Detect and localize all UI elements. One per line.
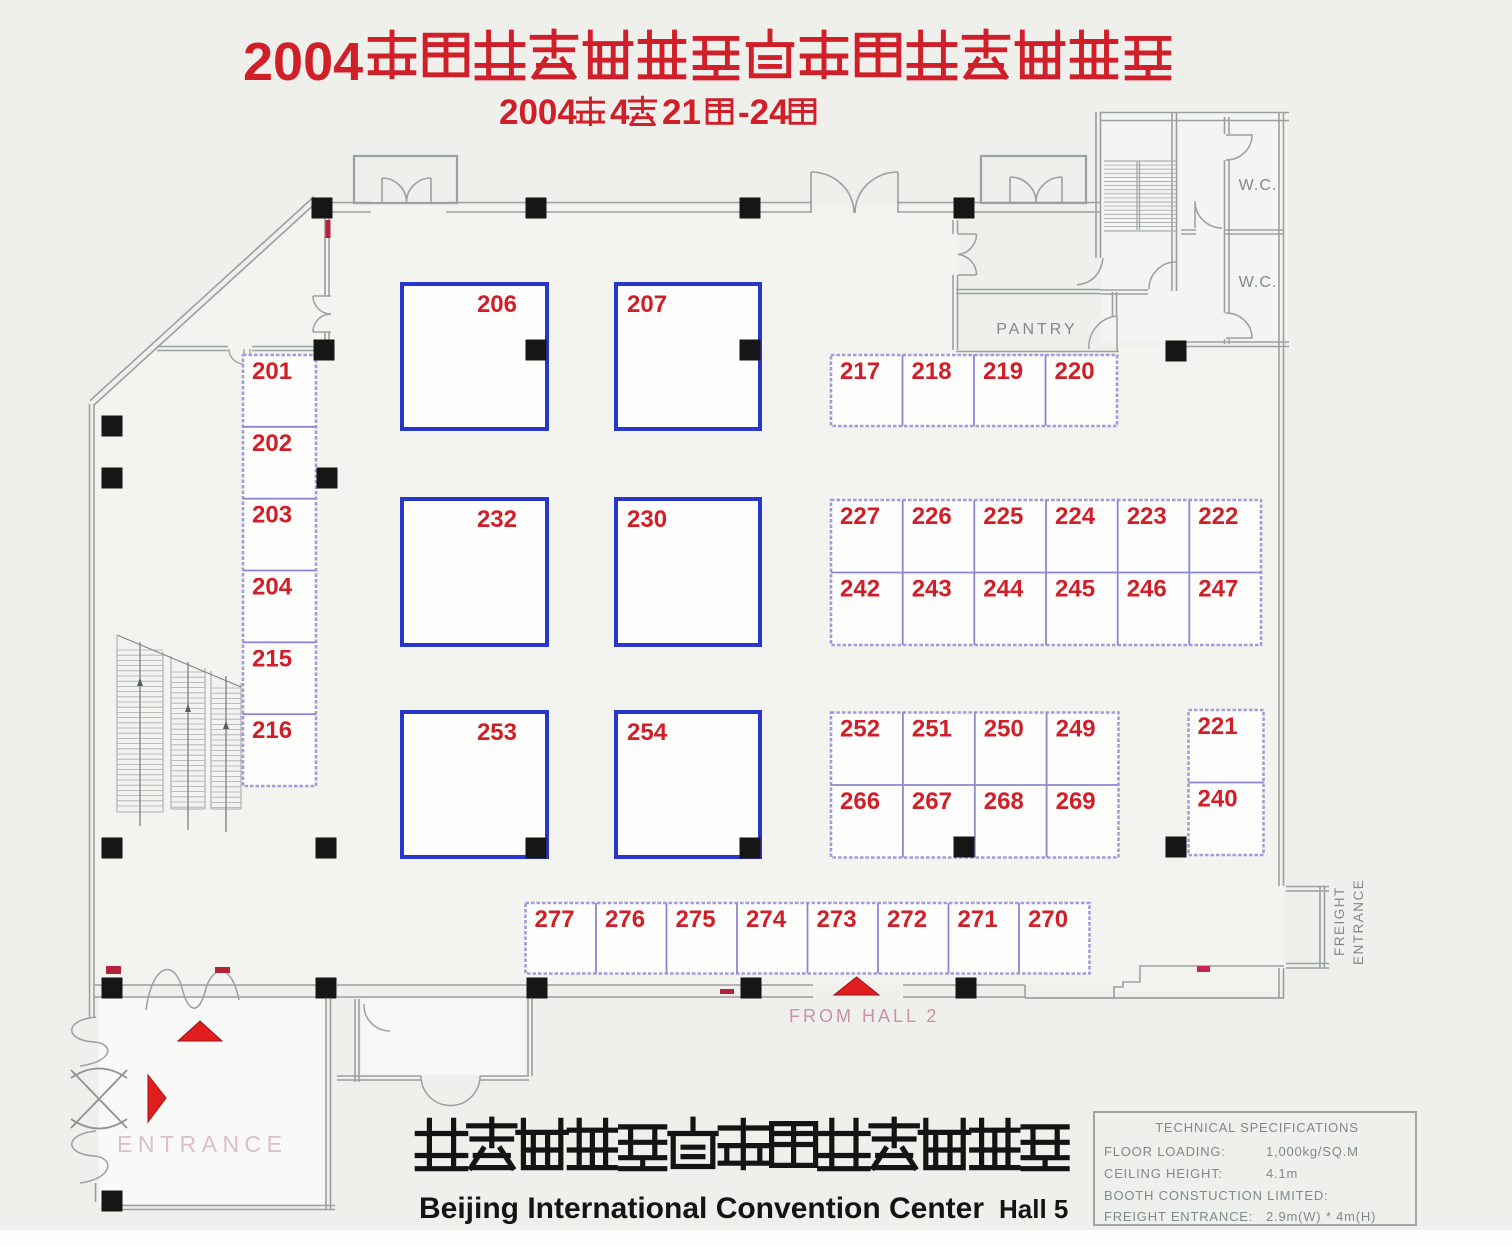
- svg-text:251: 251: [912, 716, 952, 743]
- svg-text:ENTRANCE: ENTRANCE: [1351, 879, 1366, 965]
- svg-text:Beijing International Conventi: Beijing International Convention Center: [419, 1192, 984, 1225]
- svg-text:CEILING HEIGHT:: CEILING HEIGHT:: [1104, 1166, 1223, 1181]
- svg-text:240: 240: [1198, 786, 1238, 813]
- svg-text:216: 216: [252, 717, 292, 744]
- svg-text:224: 224: [1055, 503, 1096, 530]
- svg-text:21: 21: [662, 93, 701, 132]
- svg-text:242: 242: [840, 576, 880, 603]
- svg-text:226: 226: [912, 503, 952, 530]
- svg-text:253: 253: [477, 719, 517, 746]
- svg-text:207: 207: [627, 291, 667, 318]
- svg-text:215: 215: [252, 645, 292, 672]
- svg-text:203: 203: [252, 502, 292, 529]
- svg-text:269: 269: [1056, 788, 1096, 815]
- svg-text:204: 204: [252, 574, 293, 601]
- svg-text:245: 245: [1055, 576, 1095, 603]
- svg-text:FREIGHT: FREIGHT: [1332, 886, 1347, 956]
- svg-text:273: 273: [817, 906, 857, 933]
- svg-text:232: 232: [477, 506, 517, 533]
- svg-text:272: 272: [887, 906, 927, 933]
- svg-text:250: 250: [984, 716, 1024, 743]
- svg-text:267: 267: [912, 788, 952, 815]
- svg-text:227: 227: [840, 503, 880, 530]
- svg-text:270: 270: [1028, 906, 1068, 933]
- svg-text:223: 223: [1127, 503, 1167, 530]
- svg-text:244: 244: [983, 576, 1024, 603]
- svg-text:2004: 2004: [499, 93, 577, 132]
- svg-text:2.9m(W) * 4m(H): 2.9m(W) * 4m(H): [1266, 1209, 1376, 1224]
- svg-text:268: 268: [984, 788, 1024, 815]
- svg-text:W.C.: W.C.: [1239, 274, 1278, 291]
- svg-text:252: 252: [840, 716, 880, 743]
- svg-text:202: 202: [252, 430, 292, 457]
- svg-text:275: 275: [676, 906, 716, 933]
- svg-text:217: 217: [840, 358, 880, 385]
- svg-text:271: 271: [958, 906, 998, 933]
- svg-text:243: 243: [912, 576, 952, 603]
- svg-text:222: 222: [1198, 503, 1238, 530]
- svg-text:4: 4: [610, 93, 630, 132]
- svg-text:274: 274: [746, 906, 787, 933]
- svg-text:206: 206: [477, 291, 517, 318]
- svg-text:249: 249: [1056, 716, 1096, 743]
- svg-text:219: 219: [983, 358, 1023, 385]
- svg-text:276: 276: [605, 906, 645, 933]
- svg-text:218: 218: [912, 358, 952, 385]
- svg-text:FLOOR LOADING:: FLOOR LOADING:: [1104, 1144, 1226, 1159]
- svg-text:-24: -24: [738, 93, 789, 132]
- svg-text:201: 201: [252, 358, 292, 385]
- svg-text:220: 220: [1055, 358, 1095, 385]
- svg-text:221: 221: [1198, 713, 1238, 740]
- svg-text:FREIGHT ENTRANCE:: FREIGHT ENTRANCE:: [1104, 1209, 1253, 1224]
- svg-text:BOOTH CONSTUCTION LIMITED:: BOOTH CONSTUCTION LIMITED:: [1104, 1188, 1328, 1203]
- svg-text:247: 247: [1198, 576, 1238, 603]
- svg-text:230: 230: [627, 506, 667, 533]
- svg-text:FROM HALL 2: FROM HALL 2: [789, 1006, 939, 1026]
- svg-text:254: 254: [627, 719, 668, 746]
- svg-text:TECHNICAL SPECIFICATIONS: TECHNICAL SPECIFICATIONS: [1155, 1120, 1358, 1135]
- svg-text:225: 225: [983, 503, 1023, 530]
- svg-text:PANTRY: PANTRY: [996, 321, 1077, 338]
- svg-text:W.C.: W.C.: [1239, 177, 1278, 194]
- svg-text:246: 246: [1127, 576, 1167, 603]
- svg-text:266: 266: [840, 788, 880, 815]
- svg-text:ENTRANCE: ENTRANCE: [117, 1131, 288, 1157]
- svg-text:2004: 2004: [243, 32, 363, 92]
- svg-text:Hall 5: Hall 5: [999, 1194, 1068, 1224]
- svg-text:277: 277: [535, 906, 575, 933]
- svg-text:4.1m: 4.1m: [1266, 1166, 1298, 1181]
- svg-text:1,000kg/SQ.M: 1,000kg/SQ.M: [1266, 1144, 1359, 1159]
